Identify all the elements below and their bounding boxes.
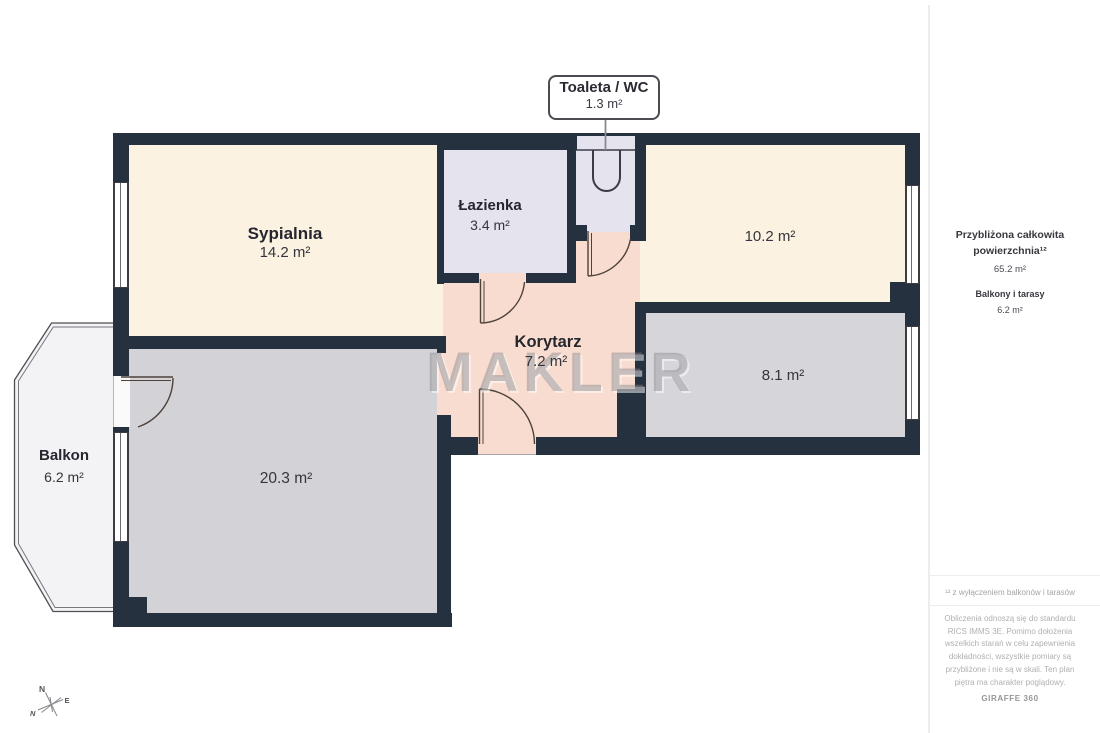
svg-text:N: N xyxy=(39,684,45,694)
svg-text:E: E xyxy=(65,696,70,705)
svg-text:N: N xyxy=(30,709,36,718)
